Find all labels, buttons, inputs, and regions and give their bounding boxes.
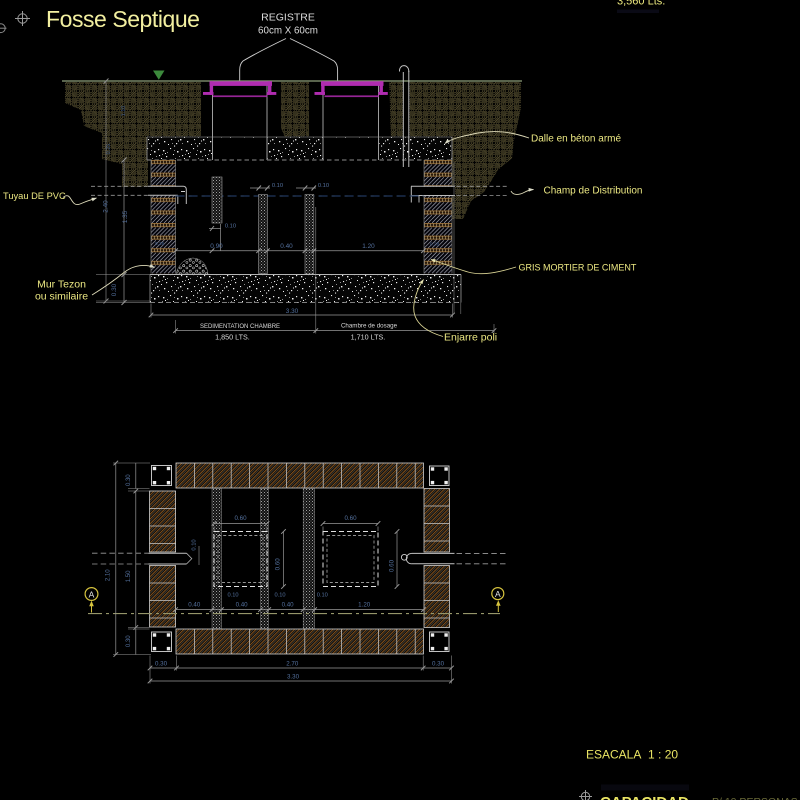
svg-text:0.30: 0.30 — [155, 661, 168, 668]
svg-text:ou similaire: ou similaire — [35, 291, 88, 303]
svg-text:1,710 LTS.: 1,710 LTS. — [351, 333, 386, 342]
svg-text:0.10: 0.10 — [272, 183, 283, 189]
svg-text:60cm X 60cm: 60cm X 60cm — [258, 26, 318, 37]
svg-text:0.40: 0.40 — [282, 601, 295, 608]
svg-text:0.60: 0.60 — [234, 515, 247, 522]
svg-text:0.90: 0.90 — [210, 243, 223, 250]
svg-text:0.10: 0.10 — [274, 593, 285, 599]
svg-text:2.40: 2.40 — [103, 200, 110, 213]
svg-text:0.28: 0.28 — [430, 242, 440, 248]
svg-text:SEDIMENTATION CHAMBRE: SEDIMENTATION CHAMBRE — [200, 324, 280, 330]
svg-text:1,850 LTS.: 1,850 LTS. — [215, 333, 250, 342]
svg-text:1.35: 1.35 — [122, 210, 129, 223]
svg-text:0.40: 0.40 — [188, 601, 201, 608]
svg-text:ESACALA 1 : 20: ESACALA 1 : 20 — [586, 748, 678, 762]
svg-text:0.40: 0.40 — [236, 601, 249, 608]
svg-text:0.30: 0.30 — [126, 474, 132, 486]
svg-text:GRIS MORTIER DE CIMENT: GRIS MORTIER DE CIMENT — [519, 263, 637, 273]
svg-text:Enjarre poli: Enjarre poli — [444, 332, 497, 344]
svg-text:0.60: 0.60 — [275, 558, 282, 571]
svg-text:0.25: 0.25 — [106, 144, 112, 155]
svg-text:0.60: 0.60 — [344, 515, 357, 522]
svg-text:0.10: 0.10 — [317, 593, 328, 599]
svg-text:2.10: 2.10 — [106, 569, 112, 581]
svg-text:Dalle en béton armé: Dalle en béton armé — [531, 134, 621, 145]
svg-text:1.10: 1.10 — [121, 106, 127, 117]
svg-text:0.60: 0.60 — [389, 559, 396, 572]
svg-text:3.30: 3.30 — [287, 674, 300, 681]
svg-text:1.20: 1.20 — [362, 243, 375, 250]
svg-text:1.20: 1.20 — [358, 601, 371, 608]
svg-text:0.40: 0.40 — [280, 243, 293, 250]
svg-text:A: A — [495, 589, 501, 599]
svg-text:0.25: 0.25 — [155, 241, 165, 247]
svg-text:0.30: 0.30 — [432, 661, 445, 668]
svg-text:Champ de Distribution: Champ de Distribution — [544, 186, 643, 197]
svg-text:0.10: 0.10 — [192, 539, 198, 550]
svg-text:3,560 Lts.: 3,560 Lts. — [617, 0, 665, 8]
svg-text:CAPACIDAD: CAPACIDAD — [600, 794, 689, 800]
svg-text:REGISTRE: REGISTRE — [261, 12, 315, 24]
svg-text:Tuyau DE PVC: Tuyau DE PVC — [3, 191, 66, 201]
svg-text:0.30: 0.30 — [126, 635, 132, 647]
svg-text:0.10: 0.10 — [227, 593, 238, 599]
svg-text:Chambre de dosage: Chambre de dosage — [341, 323, 398, 330]
svg-text:A: A — [89, 589, 95, 599]
svg-text:3.30: 3.30 — [286, 308, 299, 315]
svg-text:P/ 10 PERSONAS: P/ 10 PERSONAS — [712, 796, 798, 800]
svg-text:0.10: 0.10 — [318, 183, 329, 189]
svg-text:Mur Tezon: Mur Tezon — [37, 279, 86, 291]
svg-text:2.70: 2.70 — [286, 660, 299, 667]
svg-text:0.10: 0.10 — [225, 223, 236, 229]
svg-text:Fosse Septique: Fosse Septique — [46, 6, 200, 32]
svg-text:0.30: 0.30 — [111, 283, 118, 296]
svg-text:1.50: 1.50 — [126, 570, 132, 582]
